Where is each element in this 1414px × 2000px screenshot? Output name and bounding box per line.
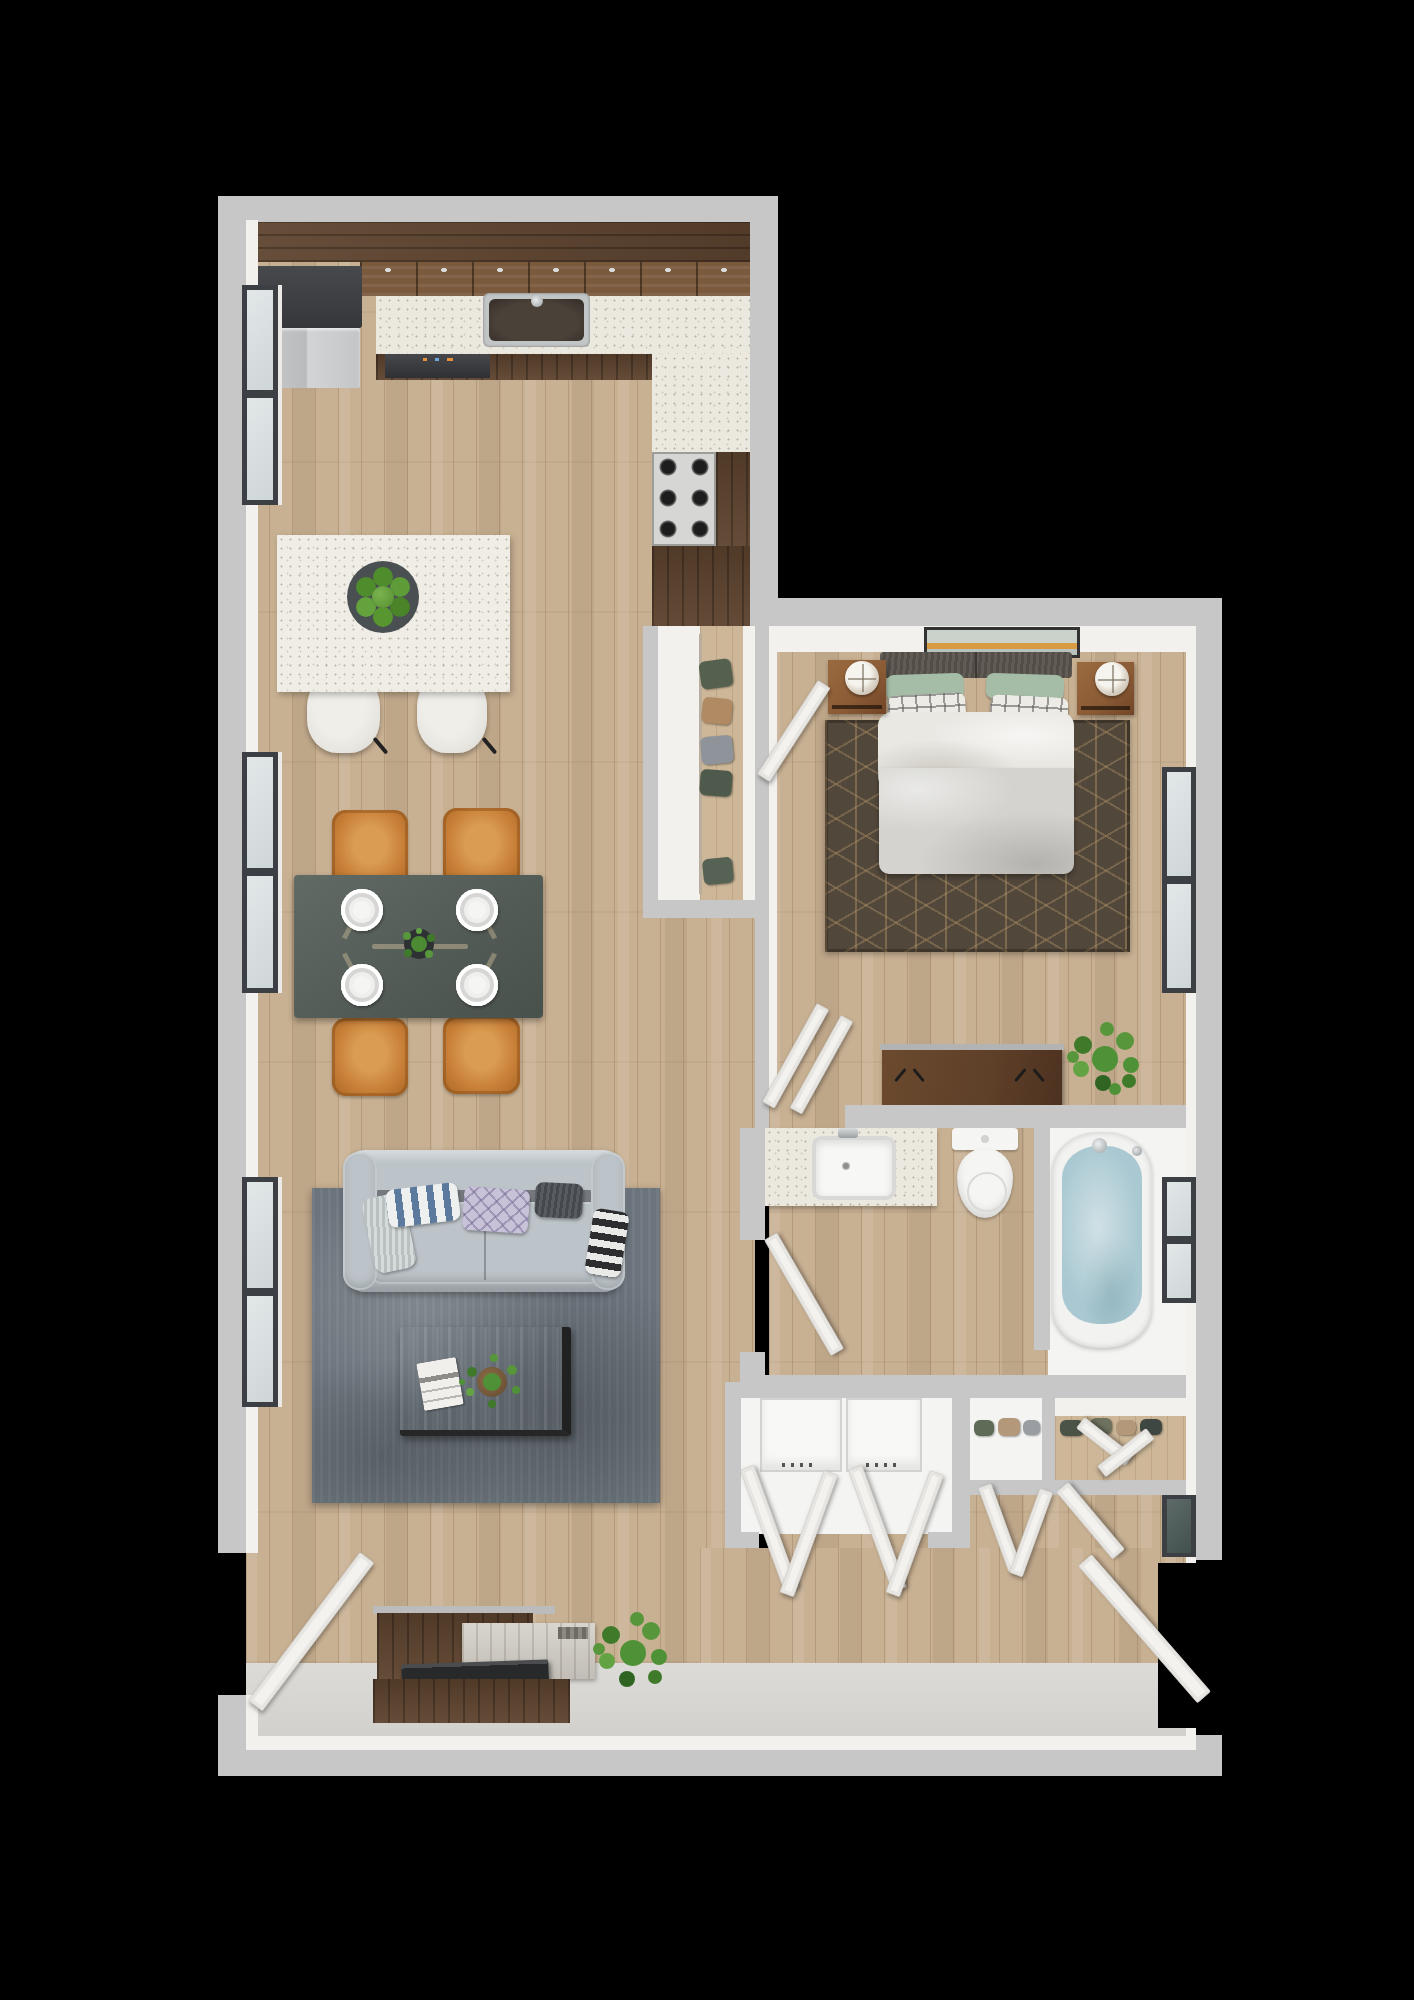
dresser-leg-icon <box>1014 1068 1027 1082</box>
sink-drain-icon <box>842 1162 850 1170</box>
window-glass <box>247 757 273 868</box>
floorplan-scene <box>0 0 1414 2000</box>
linen-shelf-item <box>998 1418 1020 1436</box>
kitchen-cabinet-row <box>360 262 750 296</box>
tv-floor-plant <box>620 1640 646 1666</box>
living-window <box>242 1177 282 1407</box>
dining-centerpiece-plant <box>411 936 427 952</box>
toilet-tank <box>952 1128 1018 1150</box>
entry-closet-shelf <box>1055 1398 1196 1416</box>
dinner-plate <box>456 889 498 931</box>
bottom-wall <box>218 1750 1222 1776</box>
bedroom-wing-top-wall <box>750 598 1222 626</box>
kitchen-right-exterior-wall <box>750 196 778 626</box>
tub-faucet-icon <box>1092 1138 1107 1153</box>
entry-closet-item <box>1116 1420 1136 1435</box>
window-glass <box>1167 884 1191 988</box>
toilet-seat-line <box>967 1172 1007 1212</box>
dinner-plate <box>456 964 498 1006</box>
linen-shelf-item <box>974 1420 994 1436</box>
entry-sidelight-window <box>1162 1495 1196 1557</box>
window-glass <box>247 398 273 500</box>
hanging-garment <box>702 857 735 886</box>
nightstand-drawer-line <box>1081 706 1130 710</box>
hanging-garment <box>699 769 733 797</box>
tv-console-base <box>373 1679 570 1723</box>
washer <box>760 1398 842 1472</box>
bath-bottom-wall <box>740 1375 1222 1398</box>
washer-controls-icon <box>782 1463 816 1467</box>
closet-right-wall <box>743 626 755 902</box>
hanging-garment <box>700 735 734 766</box>
kitchen-sink <box>483 293 590 347</box>
kitchen-counter-right <box>652 354 750 454</box>
tub-handshower-icon <box>1132 1146 1142 1156</box>
gas-cooktop <box>652 452 716 546</box>
window-glass <box>1167 1244 1191 1298</box>
nightstand-drawer-line <box>832 705 882 709</box>
window-glass <box>1167 1499 1191 1553</box>
linen-shelf-item <box>1023 1420 1040 1435</box>
hall-bedroom-wall <box>755 626 769 1128</box>
dinner-plate <box>341 889 383 931</box>
dishwasher-lights-icon <box>423 358 453 361</box>
toilet-flush-button-icon <box>981 1135 989 1143</box>
tub-half-wall <box>1034 1128 1050 1350</box>
entry-closet-interior <box>1055 1398 1196 1482</box>
laundry-bottom-stub-right <box>928 1532 970 1548</box>
window-glass <box>247 1182 273 1288</box>
dining-window <box>242 752 282 993</box>
hanging-garment <box>698 658 734 690</box>
dishwasher <box>385 354 490 378</box>
bedroom-bottom-wall <box>845 1105 1222 1128</box>
closet-shelf-side <box>658 626 700 902</box>
kitchen-upper-cabinets <box>246 220 750 262</box>
closet-bottom-wall <box>643 900 765 918</box>
sink-faucet-icon <box>531 295 543 307</box>
side-door-opening <box>218 1553 246 1695</box>
bed <box>878 648 1074 874</box>
window-glass <box>247 290 273 390</box>
window-glass <box>1167 772 1191 876</box>
laundry-right-wall <box>952 1398 970 1548</box>
vanity-sink <box>812 1136 896 1200</box>
window-glass <box>247 1296 273 1402</box>
top-wall <box>218 196 778 222</box>
table-lamp-left <box>845 661 879 695</box>
bottom-wall-face <box>246 1736 1196 1750</box>
dresser-leg-icon <box>912 1068 925 1082</box>
coffee-table-plant <box>483 1373 501 1391</box>
laundry-bottom-stub-left <box>725 1532 759 1548</box>
dresser-top-rail <box>880 1044 1064 1050</box>
magazine <box>416 1357 464 1411</box>
pillow-lavender-diamond <box>462 1186 531 1234</box>
closet-left-wall <box>643 626 658 918</box>
bathroom-window <box>1162 1177 1196 1303</box>
headboard-seam <box>975 652 977 678</box>
window-glass <box>1167 1182 1191 1236</box>
hanging-garment <box>701 697 734 726</box>
linen-closet-interior <box>970 1398 1042 1482</box>
laundry-left-wall <box>725 1382 741 1548</box>
kitchen-base-cabinets-right <box>652 546 750 632</box>
bath-left-wall-upper <box>740 1128 765 1240</box>
bathtub-water <box>1062 1146 1142 1324</box>
main-entry-opening <box>1196 1560 1222 1735</box>
window-glass <box>247 876 273 988</box>
green-apples <box>372 586 394 608</box>
dining-chair <box>332 1018 408 1096</box>
dining-chair <box>443 1016 520 1094</box>
console-books <box>558 1627 588 1639</box>
toilet <box>950 1128 1020 1220</box>
closets-divider-wall <box>1042 1398 1055 1493</box>
table-lamp-right <box>1095 662 1129 696</box>
bathtub <box>1052 1132 1152 1348</box>
dresser-leg-icon <box>894 1068 907 1082</box>
bed-duvet <box>879 768 1074 874</box>
bedroom-plant <box>1092 1046 1118 1072</box>
dresser <box>882 1047 1062 1105</box>
right-wall-upper <box>1196 598 1222 1560</box>
pillow-dark-gray <box>534 1182 584 1219</box>
dinner-plate <box>341 964 383 1006</box>
dresser-leg-icon <box>1032 1068 1045 1082</box>
bedroom-window <box>1162 767 1196 993</box>
dryer-controls-icon <box>866 1463 900 1467</box>
bedroom-left-wall-face <box>769 652 777 1105</box>
toilet-bowl <box>957 1148 1013 1218</box>
kitchen-window <box>242 285 282 505</box>
vanity-faucet-icon <box>838 1128 858 1138</box>
cooktop-side-counter <box>716 452 750 546</box>
kitchen-base-cabinets <box>376 354 652 380</box>
fruit-bowl <box>347 561 419 633</box>
dryer <box>846 1398 922 1472</box>
